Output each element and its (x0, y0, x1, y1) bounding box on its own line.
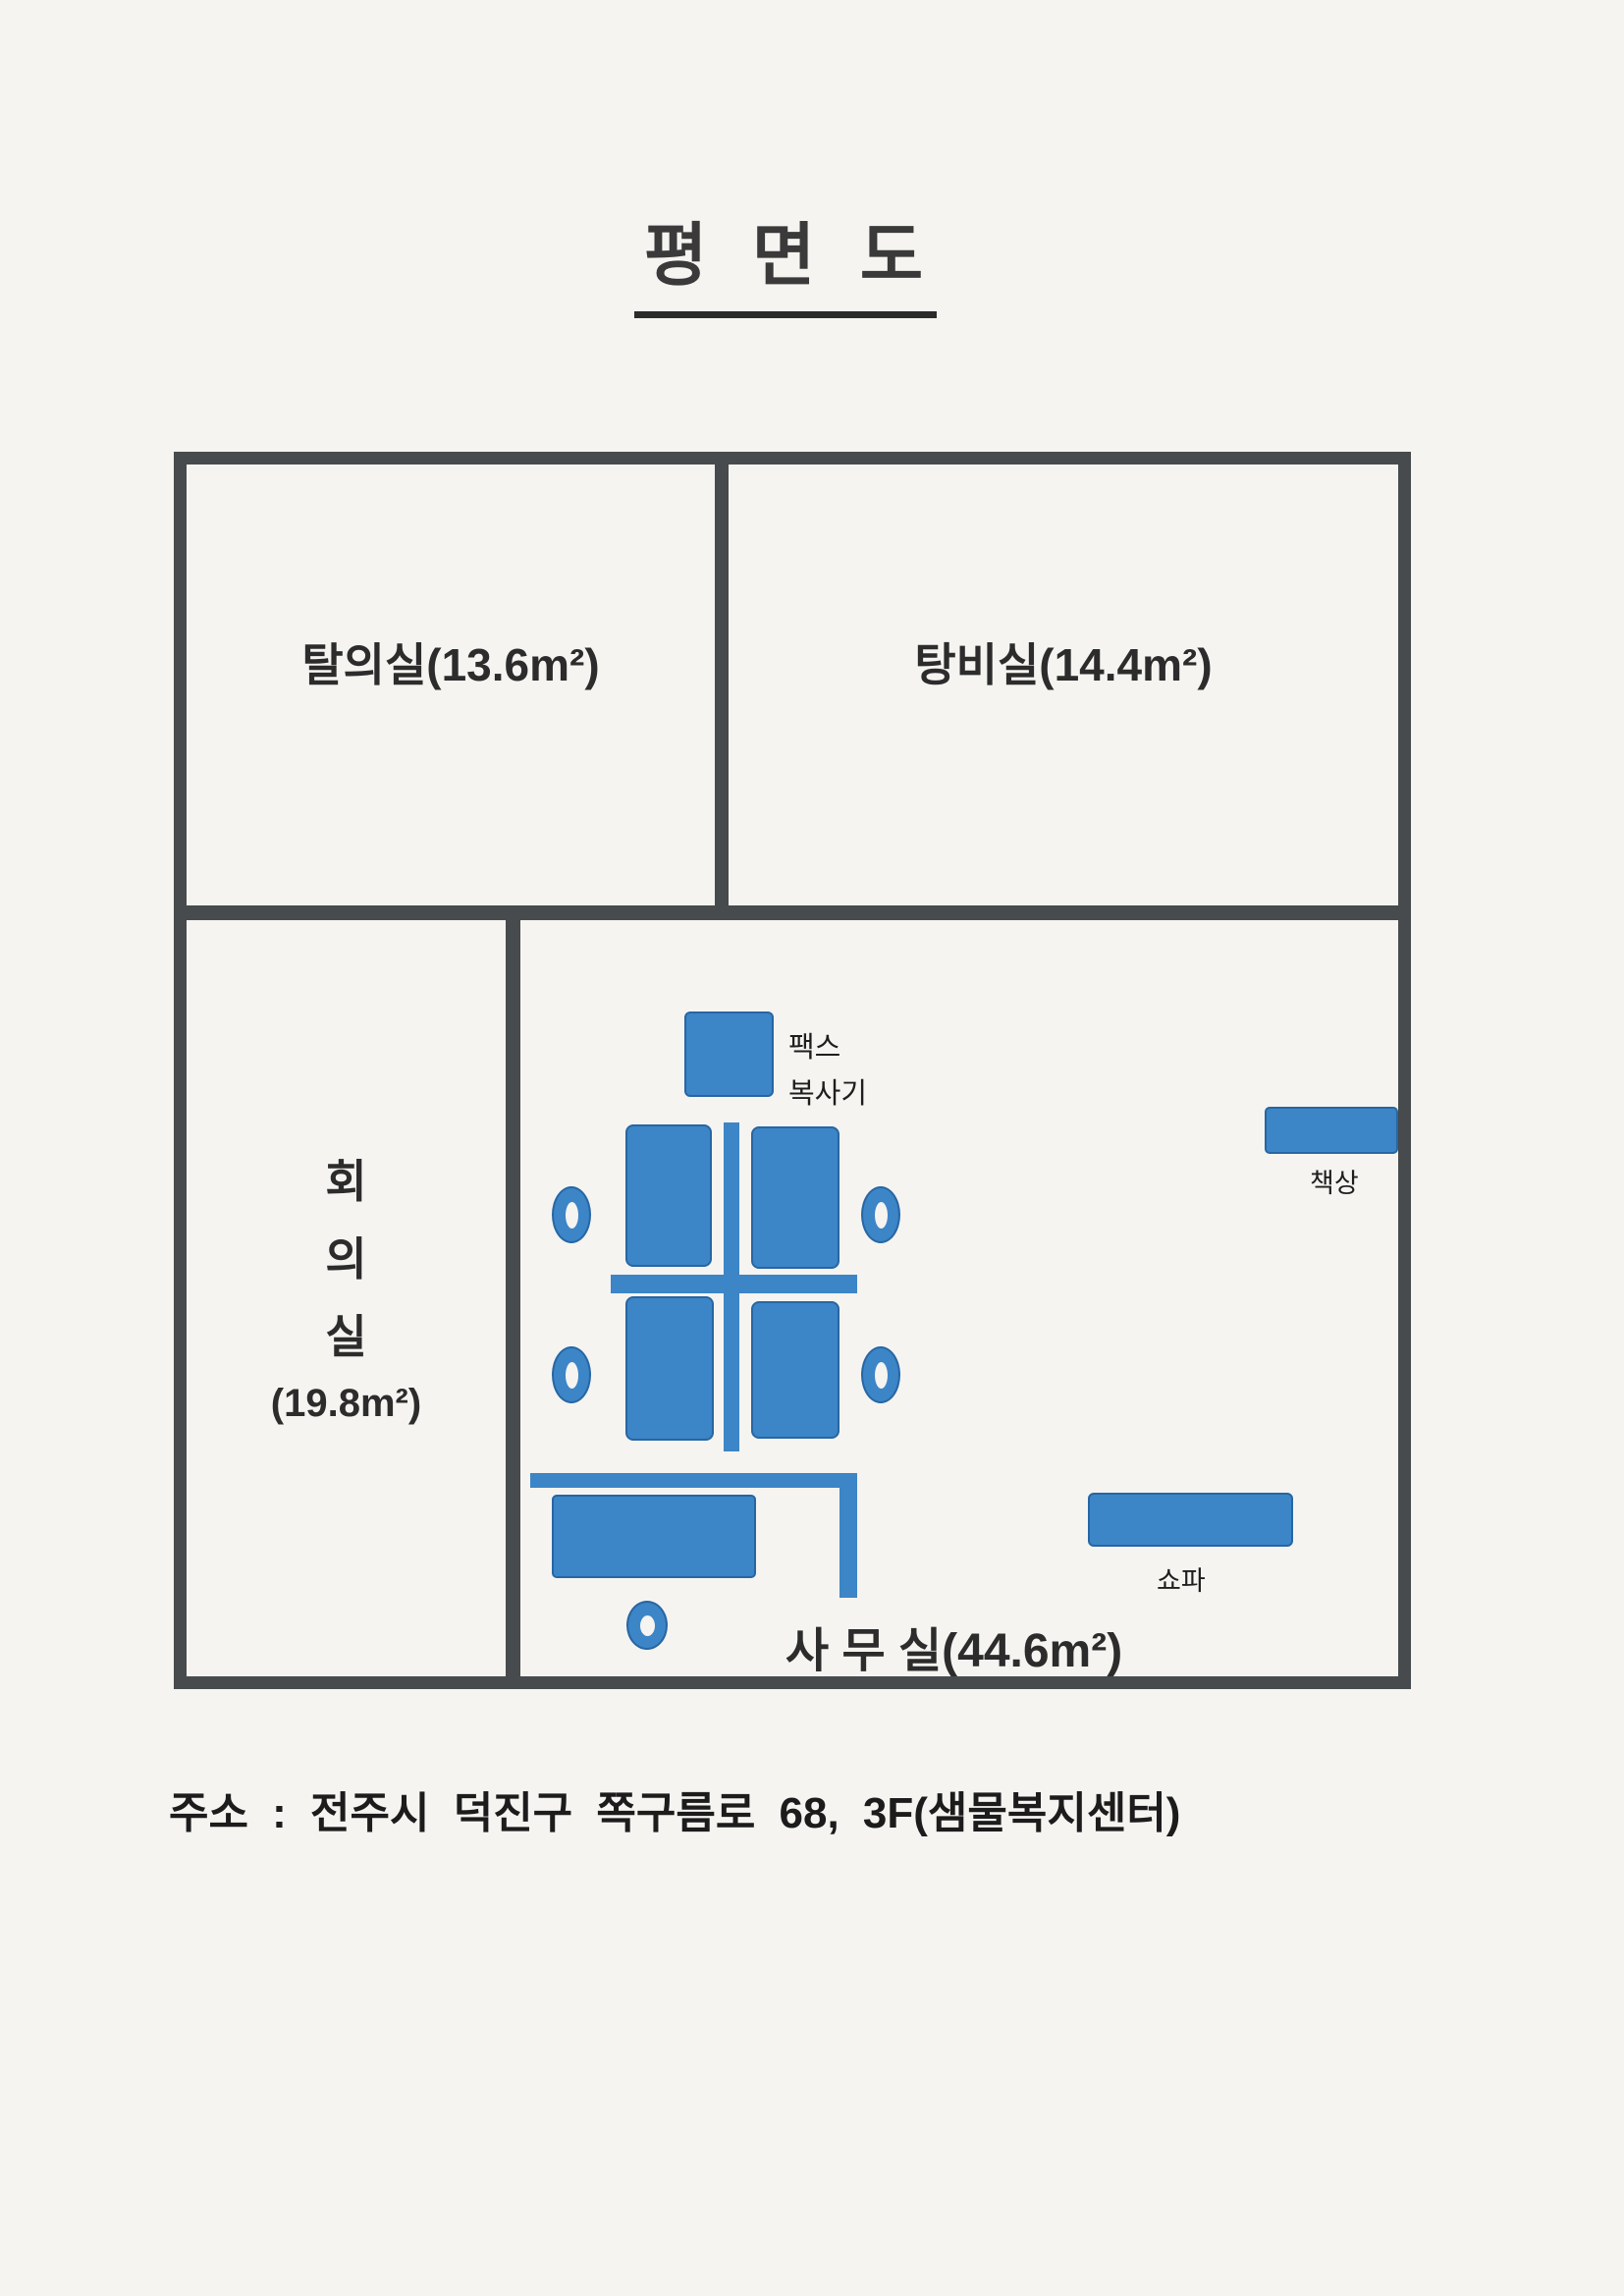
page-title: 평 면 도 (634, 200, 937, 318)
chair-bottom-right (861, 1346, 900, 1403)
table-cross-horizontal-bar (611, 1275, 857, 1293)
office-chair (626, 1601, 668, 1650)
chair-top-left (552, 1186, 591, 1243)
chair-top-right (861, 1186, 900, 1243)
scanned-floor-plan-page: 평 면 도 탈의실(13.6m²) 탕비실(14.4m²) 회 의 실 (19.… (0, 0, 1624, 2296)
chair-hole (875, 1202, 888, 1229)
fax-copier-shape (684, 1011, 774, 1097)
room-meeting-area-label: (19.8m²) (187, 1382, 506, 1426)
sofa-shape (1088, 1493, 1293, 1547)
conference-table-bottom-right (751, 1301, 839, 1439)
chair-hole (875, 1362, 888, 1389)
room-office-label: 사 무 실(44.6m²) (785, 1612, 1122, 1680)
conference-table-top-left (625, 1124, 712, 1267)
floor-plan: 탈의실(13.6m²) 탕비실(14.4m²) 회 의 실 (19.8m²) 사… (174, 452, 1411, 1689)
fax-label-line1: 팩스 (788, 1024, 840, 1066)
chair-hole (566, 1202, 578, 1229)
l-desk-top-bar (530, 1473, 857, 1488)
wall-vertical-bottom-divider (506, 920, 520, 1676)
wall-horizontal-divider (187, 905, 1398, 920)
room-meeting-label-line3: 실 (187, 1301, 506, 1366)
sofa-label: 쇼파 (1157, 1559, 1206, 1598)
room-meeting-label-line2: 의 (187, 1224, 506, 1288)
room-meeting-label-line1: 회 (187, 1146, 506, 1211)
chair-hole (566, 1362, 578, 1389)
chair-hole (640, 1615, 655, 1636)
wall-vertical-top-divider (715, 465, 729, 905)
wall-desk-shape (1265, 1107, 1398, 1154)
l-desk-right-bar (839, 1473, 857, 1598)
conference-table-top-right (751, 1126, 839, 1269)
chair-bottom-left (552, 1346, 591, 1403)
room-pantry-label: 탕비실(14.4m²) (729, 629, 1398, 694)
address-line: 주소 : 전주시 덕진구 쪽구름로 68, 3F(샘물복지센터) (169, 1777, 1180, 1840)
conference-table-bottom-left (625, 1296, 714, 1441)
fax-label-line2: 복사기 (788, 1070, 867, 1112)
office-desk (552, 1495, 756, 1578)
wall-desk-label: 책상 (1310, 1162, 1359, 1200)
room-dressing-label: 탈의실(13.6m²) (187, 629, 715, 694)
